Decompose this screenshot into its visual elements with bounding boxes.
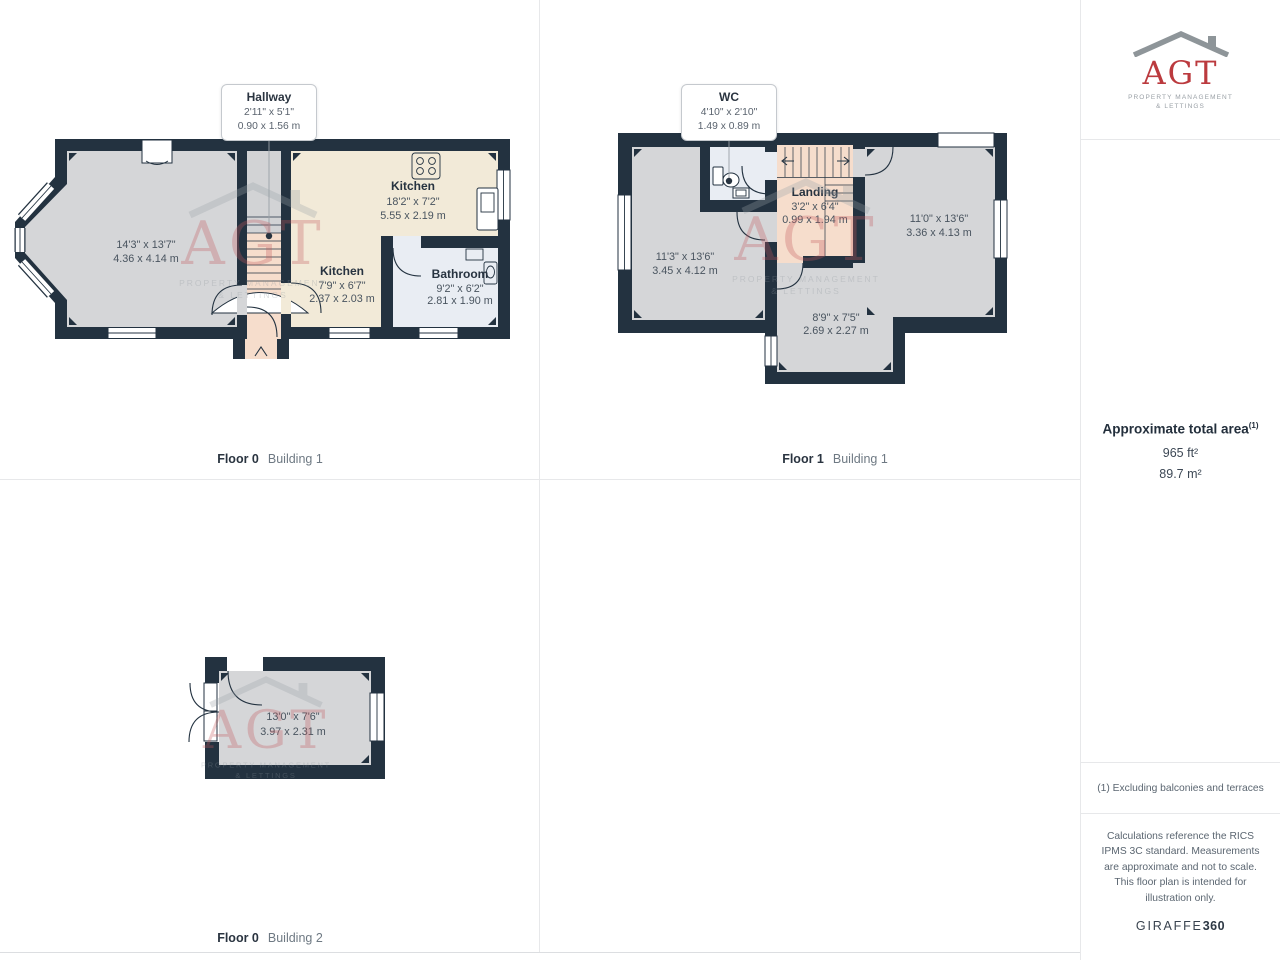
hallway-callout-metric: 0.90 x 1.56 m (231, 120, 307, 134)
kitchen-main-dims: 18'2" x 7'2" (386, 196, 439, 208)
hallway-callout-name: Hallway (231, 89, 307, 106)
wc-callout: WC 4'10" x 2'10" 1.49 x 0.89 m (681, 84, 777, 141)
living-room-dims: 14'3" x 13'7" (116, 239, 175, 251)
caption-building: Building 2 (268, 931, 323, 945)
footnote-marker: (1) (1249, 421, 1259, 430)
agency-logo: AGT PROPERTY MANAGEMENT & LETTINGS (1081, 0, 1280, 140)
room-small-dims-metric: 2.69 x 2.27 m (803, 325, 868, 337)
bedroom-left-dims-metric: 3.45 x 4.12 m (652, 265, 717, 277)
floorplan-page: 14'3" x 13'7" 4.36 x 4.14 m Kitchen 18'2… (0, 0, 1280, 960)
info-sidebar: AGT PROPERTY MANAGEMENT & LETTINGS Appro… (1080, 0, 1280, 960)
bathroom-dims: 9'2" x 6'2" (436, 283, 483, 295)
caption-floor0-building1: Floor 0Building 1 (0, 452, 540, 466)
kitchen-small-dims-metric: 2.37 x 2.03 m (309, 293, 374, 305)
footnote-text: (1) Excluding balconies and terraces (1097, 783, 1264, 794)
caption-floor0-building2: Floor 0Building 2 (0, 931, 540, 945)
disclaimer-text: Calculations reference the RICS IPMS 3C … (1094, 829, 1267, 906)
agency-logo-line1: PROPERTY MANAGEMENT (1128, 94, 1233, 101)
panel-floor0-building1: 14'3" x 13'7" 4.36 x 4.14 m Kitchen 18'2… (0, 0, 540, 479)
wc-callout-metric: 1.49 x 0.89 m (691, 120, 767, 134)
kitchen-main-label: Kitchen (391, 179, 435, 193)
total-area-title: Approximate total area(1) (1102, 421, 1258, 437)
kitchen-small-label: Kitchen (320, 264, 364, 278)
room-small-dims: 8'9" x 7'5" (812, 312, 859, 324)
kitchen-small-dims: 7'9" x 6'7" (318, 280, 365, 292)
windows (370, 693, 384, 741)
roof-icon (1126, 29, 1236, 57)
panel-empty (540, 479, 1080, 952)
bathroom-dims-metric: 2.81 x 1.90 m (427, 295, 492, 307)
bathroom-label: Bathroom (432, 267, 489, 281)
wc-callout-imperial: 4'10" x 2'10" (691, 106, 767, 120)
landing-dims-metric: 0.99 x 1.94 m (782, 214, 847, 226)
caption-floor: Floor 1 (782, 452, 824, 466)
floorplan-floor1-building1: 11'3" x 13'6" 3.45 x 4.12 m Landing 3'2"… (540, 0, 1080, 479)
caption-floor1-building1: Floor 1Building 1 (565, 452, 1105, 466)
kitchen-main-dims-metric: 5.55 x 2.19 m (380, 210, 445, 222)
caption-building: Building 1 (268, 452, 323, 466)
caption-floor: Floor 0 (217, 931, 259, 945)
hallway-callout-imperial: 2'11" x 5'1" (231, 106, 307, 120)
bedroom-right-dims-metric: 3.36 x 4.13 m (906, 227, 971, 239)
floorplan-floor0-building2: 13'0" x 7'6" 3.97 x 2.31 m (0, 479, 540, 952)
panel-floor1-building1: 11'3" x 13'6" 3.45 x 4.12 m Landing 3'2"… (540, 0, 1080, 479)
total-area-section: Approximate total area(1) 965 ft² 89.7 m… (1081, 140, 1280, 762)
wc-sink-icon (733, 188, 749, 198)
bedroom-right-dims: 11'0" x 13'6" (910, 213, 969, 225)
agency-logo-line2: & LETTINGS (1156, 103, 1205, 110)
disclaimer-section: Calculations reference the RICS IPMS 3C … (1081, 813, 1280, 952)
agency-logo-text: AGT (1142, 57, 1218, 89)
garage-dims: 13'0" x 7'6" (266, 711, 319, 723)
wc-callout-name: WC (691, 89, 767, 106)
panel-floor0-building2: 13'0" x 7'6" 3.97 x 2.31 m AGT PROPERTY … (0, 479, 540, 952)
caption-building: Building 1 (833, 452, 888, 466)
total-area-imperial: 965 ft² (1163, 446, 1198, 460)
kitchen-sink-icon (477, 188, 498, 230)
total-area-metric: 89.7 m² (1159, 467, 1201, 481)
floorplan-floor0-building1: 14'3" x 13'7" 4.36 x 4.14 m Kitchen 18'2… (0, 0, 540, 479)
landing-label: Landing (792, 185, 839, 199)
living-room-dims-metric: 4.36 x 4.14 m (113, 253, 178, 265)
garage-dims-metric: 3.97 x 2.31 m (260, 726, 325, 738)
footnote-section: (1) Excluding balconies and terraces (1081, 762, 1280, 813)
hallway-callout: Hallway 2'11" x 5'1" 0.90 x 1.56 m (221, 84, 317, 141)
bedroom-left-dims: 11'3" x 13'6" (656, 251, 715, 263)
landing-dims: 3'2" x 6'4" (791, 201, 838, 213)
giraffe360-logo: GIRAFFE360 (1094, 917, 1267, 936)
caption-floor: Floor 0 (217, 452, 259, 466)
